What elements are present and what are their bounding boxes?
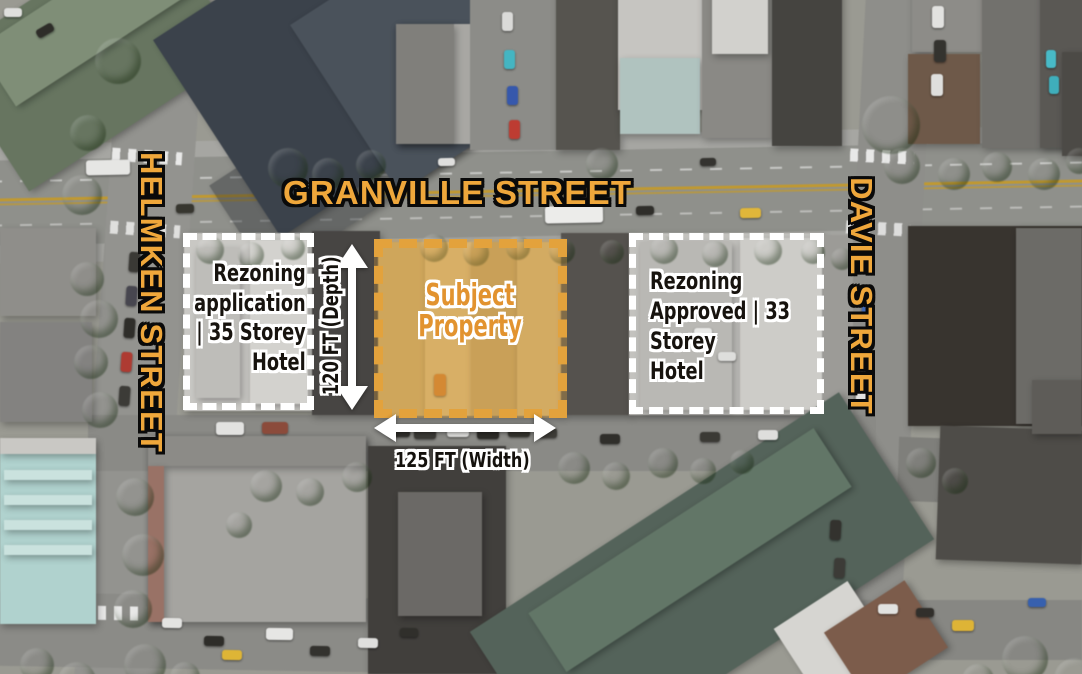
parcel-label-subject-property: Subject Property (386, 280, 554, 342)
parcel-label-line: | 35 Storey (194, 318, 306, 348)
parcel-label-line: Storey (650, 326, 790, 356)
street-label-helmken: HELMKEN STREET (133, 152, 169, 452)
width-arrow-shaft (396, 424, 534, 432)
arrow-left-head-icon (374, 414, 396, 442)
parcel-label-rezoning-application: Rezoning application | 35 Storey Hotel (194, 259, 306, 377)
annotation-layer: GRANVILLE STREET HELMKEN STREET DAVIE ST… (0, 0, 1082, 674)
parcel-label-line: Hotel (194, 348, 306, 378)
aerial-map: GRANVILLE STREET HELMKEN STREET DAVIE ST… (0, 0, 1082, 674)
parcel-label-line: Rezoning (194, 259, 306, 289)
parcel-label-line: Property (386, 311, 554, 342)
parcel-label-line: Rezoning (650, 266, 790, 296)
arrow-right-head-icon (534, 414, 556, 442)
parcel-label-rezoning-approved: Rezoning Approved | 33 Storey Hotel (650, 266, 790, 386)
street-label-granville: GRANVILLE STREET (283, 174, 632, 212)
parcel-label-line: Approved | 33 (650, 296, 790, 326)
parcel-label-line: application (194, 289, 306, 319)
width-measurement-label: 125 FT (Width) (395, 447, 523, 473)
depth-arrow-shaft (348, 266, 356, 388)
parcel-label-line: Subject (386, 280, 554, 311)
parcel-label-line: Hotel (650, 356, 790, 386)
depth-measurement-label: 120 FT (Depth) (318, 263, 344, 396)
street-label-davie: DAVIE STREET (843, 171, 879, 421)
